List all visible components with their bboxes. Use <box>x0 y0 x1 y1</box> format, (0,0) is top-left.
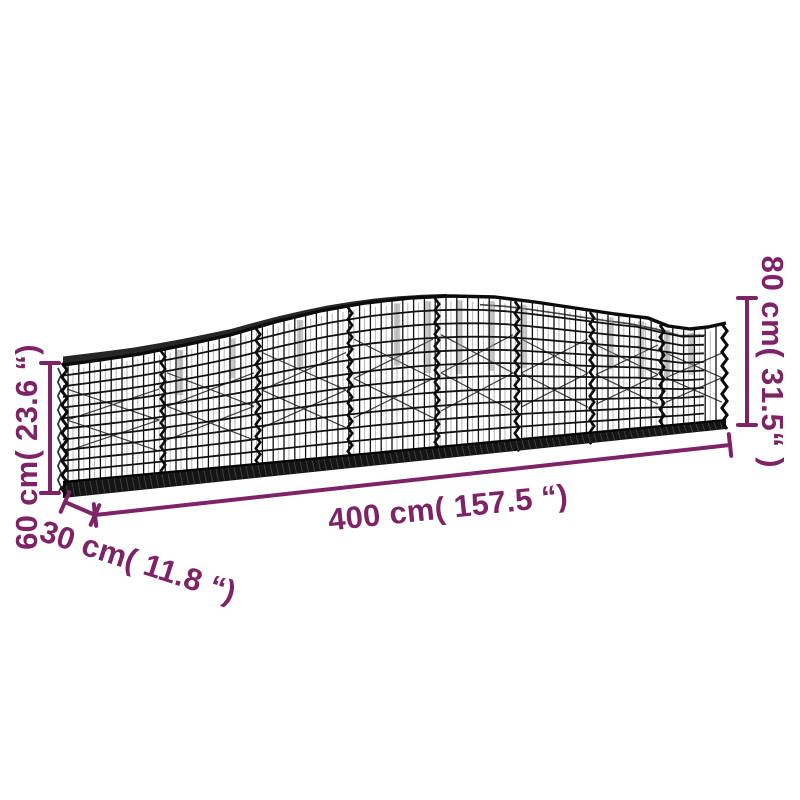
product-image-canvas: 400 cm( 157.5 “) 30 cm( 11.8 “) 60 cm( 2… <box>0 0 800 800</box>
height-right-dimension-label: 80 cm( 31.5“ ) <box>753 252 791 472</box>
gabion-basket-illustration <box>0 0 800 800</box>
basket-mesh-drawing <box>58 294 727 498</box>
height-left-dimension-label: 60 cm( 23.6 “) <box>8 337 46 557</box>
